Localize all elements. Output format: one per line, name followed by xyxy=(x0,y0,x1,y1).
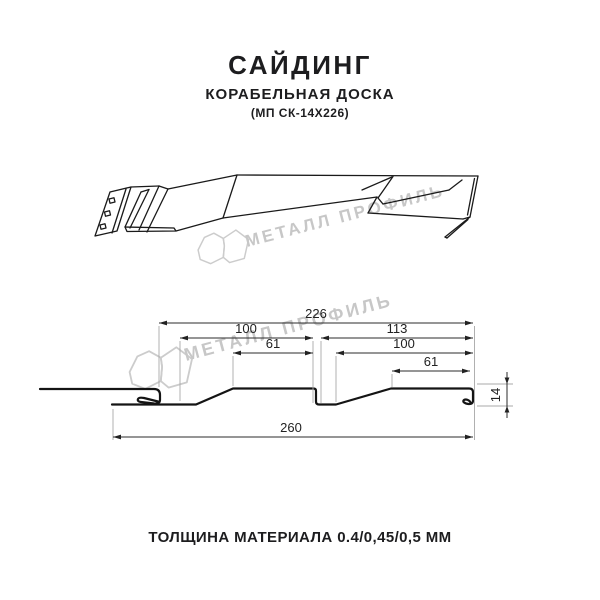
dim-label-14: 14 xyxy=(488,388,503,402)
dim-label-100-right: 100 xyxy=(393,336,415,351)
product-code: (МП СК-14Х226) xyxy=(0,106,600,120)
dim-label-61-right: 61 xyxy=(424,354,438,369)
metal-profil-logo-icon xyxy=(198,230,248,264)
product-subtitle: КОРАБЕЛЬНАЯ ДОСКА xyxy=(0,86,600,103)
cross-section-view xyxy=(40,389,473,405)
dim-label-113: 113 xyxy=(387,321,408,336)
thickness-label: ТОЛЩИНА МАТЕРИАЛА 0.4/0,45/0,5 ММ xyxy=(0,529,600,546)
watermark-text: МЕТАЛЛ ПРОФИЛЬ xyxy=(182,290,395,365)
product-drawing-page: САЙДИНГ КОРАБЕЛЬНАЯ ДОСКА (МП СК-14Х226)… xyxy=(0,0,600,600)
watermark-lower: МЕТАЛЛ ПРОФИЛЬ xyxy=(130,290,395,389)
dim-label-260: 260 xyxy=(280,420,302,435)
page-title: САЙДИНГ xyxy=(0,50,600,81)
dim-label-226: 226 xyxy=(305,306,327,321)
dim-label-100-left: 100 xyxy=(235,321,257,336)
dim-label-61-left: 61 xyxy=(266,336,280,351)
metal-profil-logo-icon xyxy=(130,347,192,389)
